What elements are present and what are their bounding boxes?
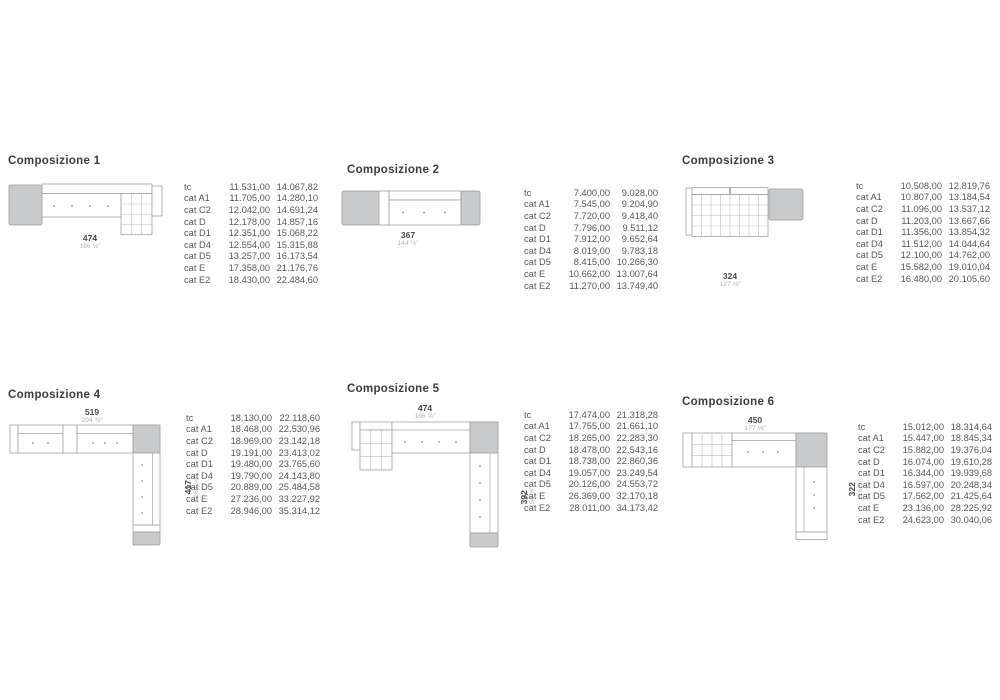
arm-band: [10, 425, 18, 453]
seat-section: [392, 422, 470, 453]
price-row: cat D119.480,0023.765,60: [186, 458, 320, 470]
price-value-1: 19.480,00: [226, 459, 272, 469]
price-value-2: 19.010,04: [942, 262, 990, 272]
price-row: cat E228.011,0034.173,42: [524, 502, 658, 514]
price-row: tc10.508,0012.819,76: [856, 180, 990, 192]
price-row: cat D58.415,0010.266,30: [524, 257, 658, 269]
composition-3-title: Composizione 3: [682, 155, 774, 167]
price-row: cat D7.796,009.511,12: [524, 222, 658, 234]
price-value-2: 14.044,64: [942, 239, 990, 249]
price-value-2: 23.765,60: [272, 459, 320, 469]
price-table-composition-3: tc10.508,0012.819,76cat A110.807,0013.18…: [856, 180, 990, 284]
price-value-1: 12.100,00: [896, 250, 942, 260]
price-row: cat E211.270,0013.749,40: [524, 280, 658, 292]
dimension-inches: 144 ½″: [358, 240, 458, 247]
end-element-gray: [470, 533, 498, 547]
sofa-plan-composition-5: [350, 420, 500, 548]
price-row: cat E27.236,0033.227,92: [186, 493, 320, 505]
price-value-2: 13.667,66: [942, 216, 990, 226]
price-value-1: 10.662,00: [564, 269, 610, 279]
category-label: cat C2: [524, 433, 564, 443]
price-value-2: 14.280,10: [270, 193, 318, 203]
arm-band: [379, 191, 389, 225]
price-value-1: 15.012,00: [898, 422, 944, 432]
vertical-seat-section: [470, 453, 498, 533]
category-label: cat D5: [524, 479, 564, 489]
arm-band: [352, 422, 360, 450]
category-label: tc: [856, 181, 896, 191]
price-row: cat A118.468,0022.530,96: [186, 424, 320, 436]
category-label: cat E: [858, 503, 898, 513]
price-value-2: 9.511,12: [610, 223, 658, 233]
price-value-1: 11.096,00: [896, 204, 942, 214]
price-value-1: 12.178,00: [224, 217, 270, 227]
price-value-2: 13.854,32: [942, 227, 990, 237]
category-label: tc: [858, 422, 898, 432]
price-row: cat D19.191,0023.413,02: [186, 447, 320, 459]
price-row: cat C27.720,009.418,40: [524, 210, 658, 222]
price-value-2: 32.170,18: [610, 491, 658, 501]
category-label: cat D: [524, 223, 564, 233]
backrest-band: [360, 422, 392, 430]
end-element-gray: [133, 532, 160, 545]
price-value-1: 18.478,00: [564, 445, 610, 455]
price-row: cat D520.126,0024.553,72: [524, 479, 658, 491]
category-label: cat E: [524, 269, 564, 279]
seat-section: [732, 433, 796, 467]
end-element-gray-right: [461, 191, 480, 225]
price-value-2: 9.418,40: [610, 211, 658, 221]
price-row: cat D416.597,0020.248,34: [858, 479, 992, 491]
price-row: cat A117.755,0021.661,10: [524, 421, 658, 433]
category-label: cat D: [524, 445, 564, 455]
price-value-1: 11.356,00: [896, 227, 942, 237]
price-row: cat D116.344,0019.939,68: [858, 467, 992, 479]
price-value-2: 15.315,88: [270, 240, 318, 250]
price-value-2: 14.857,16: [270, 217, 318, 227]
category-label: cat C2: [184, 205, 224, 215]
price-value-1: 28.946,00: [226, 506, 272, 516]
width-dimension: 474 186 ⅝″: [375, 404, 475, 421]
category-label: cat E2: [184, 275, 224, 285]
category-label: cat E: [856, 262, 896, 272]
price-value-1: 19.790,00: [226, 471, 272, 481]
category-label: tc: [524, 410, 564, 420]
vertical-seat-section: [796, 467, 827, 532]
price-row: cat E218.430,0022.484,60: [184, 274, 318, 286]
price-value-1: 11.203,00: [896, 216, 942, 226]
category-label: cat D: [856, 216, 896, 226]
price-row: cat C218.265,0022.283,30: [524, 432, 658, 444]
price-value-2: 23.142,18: [272, 436, 320, 446]
chaise-section: [121, 194, 152, 235]
seat-section-1: [18, 425, 63, 453]
category-label: cat D1: [858, 468, 898, 478]
price-value-2: 23.413,02: [272, 448, 320, 458]
price-value-1: 10.508,00: [896, 181, 942, 191]
price-value-1: 15.582,00: [896, 262, 942, 272]
seat-section-2: [77, 425, 133, 453]
dimension-cm: 474: [375, 404, 475, 413]
price-value-2: 22.118,60: [272, 413, 320, 423]
category-label: cat D4: [524, 246, 564, 256]
price-value-2: 22.484,60: [270, 275, 318, 285]
price-row: cat D419.790,0024.143,80: [186, 470, 320, 482]
dimension-cm: 322: [848, 439, 857, 539]
price-row: cat D111.356,0013.854,32: [856, 226, 990, 238]
price-value-1: 7.400,00: [564, 188, 610, 198]
category-label: cat D: [858, 457, 898, 467]
price-value-1: 8.019,00: [564, 246, 610, 256]
end-element-gray: [769, 189, 803, 220]
sofa-plan-composition-2: [341, 190, 481, 227]
price-value-1: 11.512,00: [896, 239, 942, 249]
price-row: tc17.474,0021.318,28: [524, 409, 658, 421]
category-label: cat D1: [524, 234, 564, 244]
category-label: cat E: [524, 491, 564, 501]
price-value-2: 19.376,04: [944, 445, 992, 455]
category-label: cat A1: [186, 424, 226, 434]
price-table-composition-5: tc17.474,0021.318,28cat A117.755,0021.66…: [524, 409, 658, 513]
price-row: cat A110.807,0013.184,54: [856, 192, 990, 204]
dimension-cm: 450: [705, 416, 805, 425]
category-label: cat D1: [856, 227, 896, 237]
sofa-plan-composition-6: [681, 432, 829, 540]
right-arm-band: [152, 186, 162, 216]
price-row: cat E228.946,0035.314,12: [186, 505, 320, 517]
category-label: cat E2: [524, 281, 564, 291]
price-value-2: 13.007,64: [610, 269, 658, 279]
category-label: cat D5: [856, 250, 896, 260]
category-label: cat A1: [524, 199, 564, 209]
price-value-1: 16.597,00: [898, 480, 944, 490]
price-value-1: 18.265,00: [564, 433, 610, 443]
price-row: cat E26.369,0032.170,18: [524, 490, 658, 502]
price-value-2: 14.762,00: [942, 250, 990, 260]
price-value-2: 13.537,12: [942, 204, 990, 214]
price-row: cat C212.042,0014.691,24: [184, 204, 318, 216]
backrest-band: [42, 184, 152, 194]
price-row: cat E224.623,0030.040,06: [858, 514, 992, 526]
price-value-1: 12.554,00: [224, 240, 270, 250]
price-value-1: 17.562,00: [898, 491, 944, 501]
price-row: cat C218.969,0023.142,18: [186, 435, 320, 447]
category-label: cat C2: [524, 211, 564, 221]
category-label: cat A1: [858, 433, 898, 443]
price-value-2: 22.530,96: [272, 424, 320, 434]
end-strip: [133, 525, 160, 532]
price-row: cat D17.912,009.652,64: [524, 233, 658, 245]
price-value-2: 15.068,22: [270, 228, 318, 238]
category-label: cat A1: [856, 192, 896, 202]
price-value-2: 20.248,34: [944, 480, 992, 490]
backrest-band: [389, 191, 461, 200]
price-value-2: 18.845,34: [944, 433, 992, 443]
price-value-1: 19.057,00: [564, 468, 610, 478]
price-value-1: 18.969,00: [226, 436, 272, 446]
dimension-cm: 519: [42, 408, 142, 417]
price-row: cat D520.889,0025.484,58: [186, 482, 320, 494]
category-label: cat E2: [858, 515, 898, 525]
category-label: cat D1: [524, 456, 564, 466]
category-label: cat C2: [858, 445, 898, 455]
price-row: cat A111.705,0014.280,10: [184, 193, 318, 205]
composition-2-title: Composizione 2: [347, 164, 439, 176]
arm-band: [683, 433, 692, 467]
category-label: cat D5: [184, 251, 224, 261]
price-value-1: 7.796,00: [564, 223, 610, 233]
category-label: cat D1: [186, 459, 226, 469]
price-table-composition-4: tc18.130,0022.118,60cat A118.468,0022.53…: [186, 412, 320, 516]
composition-4-title: Composizione 4: [8, 389, 100, 401]
category-label: cat D5: [524, 257, 564, 267]
corner-element-gray: [133, 425, 160, 453]
price-value-2: 13.749,40: [610, 281, 658, 291]
price-value-1: 20.889,00: [226, 482, 272, 492]
width-dimension: 474 186 ⅝″: [40, 234, 140, 251]
price-value-2: 19.939,68: [944, 468, 992, 478]
price-value-2: 16.173,54: [270, 251, 318, 261]
price-value-2: 21.318,28: [610, 410, 658, 420]
price-value-1: 24.623,00: [898, 515, 944, 525]
sofa-plan-composition-3: [684, 186, 804, 238]
price-value-2: 9.652,64: [610, 234, 658, 244]
width-dimension: 324 127 ⅝″: [680, 272, 780, 289]
category-label: cat D4: [856, 239, 896, 249]
dimension-cm: 474: [40, 234, 140, 243]
price-value-2: 21.176,76: [270, 263, 318, 273]
price-row: cat D48.019,009.783,18: [524, 245, 658, 257]
price-value-1: 13.257,00: [224, 251, 270, 261]
sofa-plan-composition-1: [8, 183, 164, 236]
price-value-1: 18.130,00: [226, 413, 272, 423]
price-row: cat D517.562,0021.425,64: [858, 491, 992, 503]
price-value-2: 30.040,06: [944, 515, 992, 525]
sofa-plan-composition-4: [8, 423, 176, 547]
price-row: cat D18.478,0022.543,16: [524, 444, 658, 456]
price-value-1: 17.358,00: [224, 263, 270, 273]
category-label: cat D: [184, 217, 224, 227]
price-value-2: 22.283,30: [610, 433, 658, 443]
price-table-composition-6: tc15.012,0018.314,64cat A115.447,0018.84…: [858, 421, 992, 525]
dimension-cm: 367: [358, 231, 458, 240]
chaise-section: [360, 430, 392, 470]
price-row: cat E23.136,0028.225,92: [858, 502, 992, 514]
price-value-1: 27.236,00: [226, 494, 272, 504]
dimension-cm: 324: [680, 272, 780, 281]
price-value-1: 19.191,00: [226, 448, 272, 458]
price-value-1: 7.545,00: [564, 199, 610, 209]
category-label: cat D5: [858, 491, 898, 501]
category-label: cat D4: [184, 240, 224, 250]
price-value-1: 23.136,00: [898, 503, 944, 513]
price-value-2: 21.425,64: [944, 491, 992, 501]
end-element-gray: [9, 185, 42, 225]
price-value-2: 14.691,24: [270, 205, 318, 215]
price-value-2: 22.860,36: [610, 456, 658, 466]
category-label: cat E2: [856, 274, 896, 284]
price-row: tc15.012,0018.314,64: [858, 421, 992, 433]
category-label: cat D4: [186, 471, 226, 481]
category-label: cat C2: [186, 436, 226, 446]
price-value-2: 18.314,64: [944, 422, 992, 432]
category-label: cat E2: [186, 506, 226, 516]
price-row: cat C211.096,0013.537,12: [856, 203, 990, 215]
composition-5-title: Composizione 5: [347, 383, 439, 395]
price-value-2: 13.184,54: [942, 192, 990, 202]
price-value-2: 22.543,16: [610, 445, 658, 455]
price-row: cat D112.351,0015.068,22: [184, 227, 318, 239]
category-label: cat D: [186, 448, 226, 458]
backrest-band-2: [731, 188, 769, 195]
arm-band: [686, 188, 692, 235]
backrest-band-1: [692, 188, 730, 195]
price-row: tc7.400,009.028,00: [524, 187, 658, 199]
price-value-1: 8.415,00: [564, 257, 610, 267]
price-value-2: 14.067,82: [270, 182, 318, 192]
vertical-seat-section: [133, 453, 160, 525]
price-value-1: 16.074,00: [898, 457, 944, 467]
price-row: cat D11.203,0013.667,66: [856, 215, 990, 227]
price-value-2: 34.173,42: [610, 503, 658, 513]
composition-1-title: Composizione 1: [8, 155, 100, 167]
price-value-1: 26.369,00: [564, 491, 610, 501]
end-element-gray-left: [342, 191, 379, 225]
price-value-1: 11.705,00: [224, 193, 270, 203]
price-row: cat A115.447,0018.845,34: [858, 433, 992, 445]
price-value-1: 12.351,00: [224, 228, 270, 238]
price-value-1: 28.011,00: [564, 503, 610, 513]
price-value-2: 23.249,54: [610, 468, 658, 478]
category-label: cat E: [186, 494, 226, 504]
price-row: tc11.531,0014.067,82: [184, 181, 318, 193]
dimension-inches: 186 ⅝″: [40, 243, 140, 250]
price-row: cat C215.882,0019.376,04: [858, 444, 992, 456]
category-label: cat A1: [524, 421, 564, 431]
category-label: cat D4: [524, 468, 564, 478]
category-label: tc: [186, 413, 226, 423]
price-value-1: 7.912,00: [564, 234, 610, 244]
price-value-1: 17.755,00: [564, 421, 610, 431]
price-row: cat D16.074,0019.610,28: [858, 456, 992, 468]
price-value-2: 12.819,76: [942, 181, 990, 191]
price-value-2: 9.204,90: [610, 199, 658, 209]
price-value-2: 19.610,28: [944, 457, 992, 467]
category-label: cat E: [184, 263, 224, 273]
category-label: tc: [184, 182, 224, 192]
price-value-1: 15.882,00: [898, 445, 944, 455]
composition-6-title: Composizione 6: [682, 396, 774, 408]
category-label: cat C2: [856, 204, 896, 214]
width-dimension: 450 177 ⅛″: [705, 416, 805, 433]
price-value-1: 12.042,00: [224, 205, 270, 215]
corner-element-gray: [796, 433, 827, 467]
price-value-1: 18.468,00: [226, 424, 272, 434]
price-value-1: 18.738,00: [564, 456, 610, 466]
seat-section: [389, 200, 461, 225]
category-label: cat A1: [184, 193, 224, 203]
category-label: tc: [524, 188, 564, 198]
price-row: cat A17.545,009.204,90: [524, 199, 658, 211]
price-value-1: 11.531,00: [224, 182, 270, 192]
price-value-1: 7.720,00: [564, 211, 610, 221]
price-row: cat D412.554,0015.315,88: [184, 239, 318, 251]
price-value-2: 24.553,72: [610, 479, 658, 489]
price-value-2: 10.266,30: [610, 257, 658, 267]
price-value-1: 15.447,00: [898, 433, 944, 443]
price-value-1: 10.807,00: [896, 192, 942, 202]
price-value-2: 20.105,60: [942, 274, 990, 284]
category-label: cat D1: [184, 228, 224, 238]
price-row: cat D419.057,0023.249,54: [524, 467, 658, 479]
end-strip: [796, 532, 827, 540]
price-value-2: 9.028,00: [610, 188, 658, 198]
price-value-2: 9.783,18: [610, 246, 658, 256]
price-value-2: 21.661,10: [610, 421, 658, 431]
price-row: cat D513.257,0016.173,54: [184, 251, 318, 263]
price-table-composition-2: tc7.400,009.028,00cat A17.545,009.204,90…: [524, 187, 658, 291]
price-row: cat D512.100,0014.762,00: [856, 250, 990, 262]
category-label: cat D4: [858, 480, 898, 490]
price-row: cat E15.582,0019.010,04: [856, 261, 990, 273]
price-row: cat E216.480,0020.105,60: [856, 273, 990, 285]
corner-element-gray: [470, 422, 498, 453]
price-row: cat D12.178,0014.857,16: [184, 216, 318, 228]
price-row: cat E17.358,0021.176,76: [184, 262, 318, 274]
price-value-1: 17.474,00: [564, 410, 610, 420]
price-value-2: 24.143,80: [272, 471, 320, 481]
price-value-1: 18.430,00: [224, 275, 270, 285]
price-value-1: 16.480,00: [896, 274, 942, 284]
price-value-2: 35.314,12: [272, 506, 320, 516]
price-table-composition-1: tc11.531,0014.067,82cat A111.705,0014.28…: [184, 181, 318, 285]
price-value-2: 33.227,92: [272, 494, 320, 504]
price-row: cat D411.512,0014.044,64: [856, 238, 990, 250]
width-dimension: 367 144 ½″: [358, 231, 458, 248]
price-row: tc18.130,0022.118,60: [186, 412, 320, 424]
price-value-1: 16.344,00: [898, 468, 944, 478]
price-value-2: 28.225,92: [944, 503, 992, 513]
price-row: cat E10.662,0013.007,64: [524, 268, 658, 280]
category-label: cat D5: [186, 482, 226, 492]
price-row: cat D118.738,0022.860,36: [524, 455, 658, 467]
price-value-1: 20.126,00: [564, 479, 610, 489]
connector-band: [63, 425, 77, 453]
price-value-2: 25.484,58: [272, 482, 320, 492]
price-value-1: 11.270,00: [564, 281, 610, 291]
dimension-inches: 127 ⅝″: [680, 281, 780, 288]
category-label: cat E2: [524, 503, 564, 513]
